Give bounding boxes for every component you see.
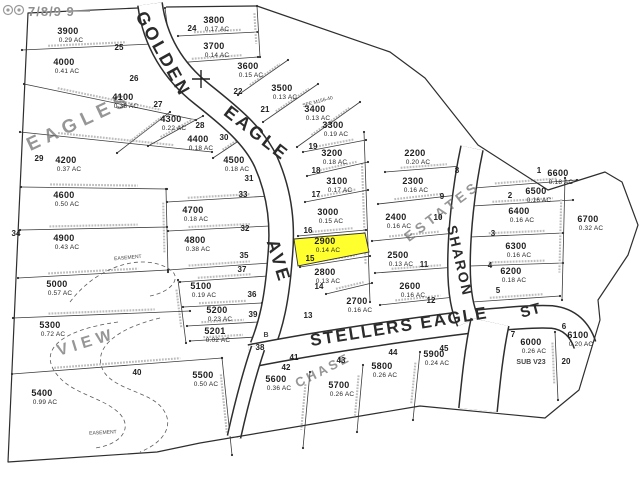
lot-number-label: 12 (427, 296, 436, 305)
lot-number-label: 20 (562, 357, 571, 366)
lot-number-label: 43 (337, 356, 346, 365)
lot-area-label: 0.32 AC (579, 225, 604, 232)
lot-number-label: 34 (12, 229, 21, 238)
lot-number-label: 40 (133, 368, 142, 377)
lot-id-label: 6700 (577, 214, 598, 224)
lot-number-label: 4 (488, 261, 493, 270)
lot-number-label: 9 (440, 192, 445, 201)
lot-number-label: 15 (306, 254, 315, 263)
lot-number-label: 13 (304, 311, 313, 320)
lot-label: 47000.18 AC (182, 205, 208, 223)
lot-label: 35000.13 AC (271, 83, 297, 101)
lot-area-label: 0.50 AC (194, 381, 219, 388)
lot-label: 48000.38 AC (184, 235, 210, 253)
lot-label: 31000.17 AC (326, 176, 352, 194)
lot-area-label: 0.18 AC (549, 179, 574, 186)
lot-id-label: 3000 (317, 207, 338, 217)
plat-map-container: 7/8/9 9GOLDENEAGLEAVESHARONSTELLERS EAGL… (0, 0, 640, 480)
lot-area-label: 0.50 AC (55, 201, 80, 208)
lot-number-label: 29 (35, 154, 44, 163)
lot-number-label: 27 (154, 100, 163, 109)
lot-area-label: 0.16 AC (510, 217, 535, 224)
lot-label: 64000.16 AC (508, 206, 534, 224)
lot-label: 30000.15 AC (317, 207, 343, 225)
lot-number-label: 39 (249, 310, 258, 319)
lot-number-label: 28 (196, 121, 205, 130)
lot-id-label: 3200 (321, 148, 342, 158)
lot-area-label: 0.19 AC (192, 292, 217, 299)
lot-number-label: 32 (241, 224, 250, 233)
lot-label: 33000.19 AC (322, 120, 348, 138)
lot-area-label: 0.16 AC (507, 252, 532, 259)
lot-label: 65000.16 AC (525, 186, 551, 204)
lot-id-label: 4500 (223, 155, 244, 165)
lot-id-label: 3600 (237, 61, 258, 71)
lot-id-label: 2700 (346, 296, 367, 306)
lot-number-label: 18 (312, 166, 321, 175)
lot-label: 52000.23 AC (206, 305, 232, 323)
lot-area-label: 0.15 AC (319, 218, 344, 225)
lot-label: 42000.37 AC (55, 155, 81, 173)
lot-area-label: 0.15 AC (239, 72, 264, 79)
lot-area-label: 0.14 AC (316, 247, 341, 254)
lot-label: 23000.16 AC (402, 176, 428, 194)
lot-label: 67000.32 AC (577, 214, 603, 232)
lot-area-label: 0.24 AC (425, 360, 450, 367)
lot-label: 37000.14 AC (203, 41, 229, 59)
lot-area-label: 0.43 AC (55, 244, 80, 251)
lot-label: 32000.18 AC (321, 148, 347, 166)
lot-label: 24000.16 AC (385, 212, 411, 230)
lot-area-label: 0.57 AC (48, 290, 73, 297)
lot-area-label: 0.18 AC (502, 277, 527, 284)
lot-id-label: 5100 (190, 281, 211, 291)
lot-id-label: 3300 (322, 120, 343, 130)
lot-number-label: 26 (130, 74, 139, 83)
lot-id-label: 5400 (31, 388, 52, 398)
lot-id-label: 2300 (402, 176, 423, 186)
annotation-label: EASEMENT (114, 254, 142, 262)
lot-area-label: 0.37 AC (57, 166, 82, 173)
lot-number-label: 8 (455, 166, 460, 175)
lot-number-label: 17 (312, 190, 321, 199)
lot-label: 63000.16 AC (505, 241, 531, 259)
plat-map: 7/8/9 9GOLDENEAGLEAVESHARONSTELLERS EAGL… (0, 0, 640, 480)
lot-id-label: 3900 (57, 26, 78, 36)
lot-number-label: 11 (420, 260, 429, 269)
lot-area-label: 0.26 AC (330, 391, 355, 398)
lot-number-label: 42 (282, 363, 291, 372)
annotation-label: B (263, 332, 268, 339)
lot-number-label: 10 (434, 213, 443, 222)
lot-number-label: 19 (309, 142, 318, 151)
lot-id-label: 2600 (399, 281, 420, 291)
lot-id-label: 4900 (53, 233, 74, 243)
lot-id-label: 6100 (567, 330, 588, 340)
lot-label: 56000.36 AC (265, 374, 291, 392)
lot-number-label: 44 (389, 348, 398, 357)
lot-label: 49000.43 AC (53, 233, 79, 251)
lot-label: 54000.99 AC (31, 388, 57, 406)
lot-area-label: 0.18 AC (189, 145, 214, 152)
lot-id-label: 4100 (112, 92, 133, 102)
lot-id-label: 5201 (204, 326, 225, 336)
lot-id-label: 6300 (505, 241, 526, 251)
lot-label: 60000.26 AC (520, 337, 546, 355)
lot-id-label: 5200 (206, 305, 227, 315)
lot-label: 36000.15 AC (237, 61, 263, 79)
lot-label: 27000.16 AC (346, 296, 372, 314)
lot-number-label: 7 (511, 330, 516, 339)
lot-label: 55000.50 AC (192, 370, 218, 388)
lot-area-label: 0.13 AC (273, 94, 298, 101)
lot-area-label: 0.41 AC (55, 68, 80, 75)
lot-number-label: 25 (115, 43, 124, 52)
lot-number-label: 38 (256, 343, 265, 352)
lot-label: 52010.02 AC (204, 326, 230, 344)
lot-id-label: 3100 (326, 176, 347, 186)
lot-area-label: 0.26 AC (373, 372, 398, 379)
lot-number-label: 33 (239, 190, 248, 199)
lot-area-label: 0.38 AC (186, 246, 211, 253)
lot-number-label: 41 (290, 353, 299, 362)
lot-area-label: 0.18 AC (184, 216, 209, 223)
lot-id-label: 2400 (385, 212, 406, 222)
lot-label: 22000.20 AC (404, 148, 430, 166)
lot-number-label: 24 (188, 24, 197, 33)
lot-number-label: 30 (220, 133, 229, 142)
lot-label: 46000.50 AC (53, 190, 79, 208)
lot-number-label: 35 (240, 251, 249, 260)
lot-id-label: 4800 (184, 235, 205, 245)
lot-label: 53000.72 AC (39, 320, 65, 338)
lot-id-label: 5500 (192, 370, 213, 380)
lot-number-label: 45 (440, 344, 449, 353)
lot-label: 51000.19 AC (190, 281, 216, 299)
lot-area-label: 0.17 AC (205, 26, 230, 33)
lot-area-label: 0.17 AC (328, 187, 353, 194)
lot-number-label: 36 (248, 290, 257, 299)
lot-id-label: 2900 (314, 236, 335, 246)
lot-area-label: 0.14 AC (205, 52, 230, 59)
lot-number-label: 2 (508, 191, 513, 200)
lot-label: 58000.26 AC (371, 361, 397, 379)
lot-id-label: 2200 (404, 148, 425, 158)
lot-id-label: 5600 (265, 374, 286, 384)
lot-area-label: 0.16 AC (527, 197, 552, 204)
lot-label: 40000.41 AC (53, 57, 79, 75)
lot-number-label: 37 (238, 265, 247, 274)
lot-id-label: 6000 (520, 337, 541, 347)
lot-area-label: 0.23 AC (208, 316, 233, 323)
lot-id-label: 2500 (387, 250, 408, 260)
lot-label: 38000.17 AC (203, 15, 229, 33)
lot-label: 45000.18 AC (223, 155, 249, 173)
lot-number-label: 31 (245, 174, 254, 183)
lot-label: 62000.18 AC (500, 266, 526, 284)
lot-id-label: 4000 (53, 57, 74, 67)
lot-id-label: 3500 (271, 83, 292, 93)
lot-area-label: 0.16 AC (401, 292, 426, 299)
lot-area-label: 0.38 AC (114, 103, 139, 110)
lot-number-label: 1 (537, 166, 542, 175)
lot-number-label: 21 (261, 105, 270, 114)
lot-id-label: 3700 (203, 41, 224, 51)
lot-area-label: 0.72 AC (41, 331, 66, 338)
lot-id-label: 4300 (160, 114, 181, 124)
lot-label: 41000.38 AC (112, 92, 138, 110)
lot-id-label: 5700 (328, 380, 349, 390)
lot-area-label: 0.29 AC (59, 37, 84, 44)
lot-area-label: 0.20 AC (406, 159, 431, 166)
lot-area-label: 0.22 AC (162, 125, 187, 132)
lot-number-label: 5 (496, 286, 501, 295)
lot-label: 66000.18 AC (547, 168, 573, 186)
lot-label: 26000.16 AC (399, 281, 425, 299)
lot-id-label: 2800 (314, 267, 335, 277)
lot-area-label: 0.18 AC (323, 159, 348, 166)
lot-id-label: 4700 (182, 205, 203, 215)
lot-number-label: 22 (234, 87, 243, 96)
lot-id-label: 6400 (508, 206, 529, 216)
lot-area-label: 0.18 AC (225, 166, 250, 173)
lot-area-label: 0.99 AC (33, 399, 58, 406)
watermark: 7/8/9 9 (4, 4, 91, 19)
lot-id-label: 5000 (46, 279, 67, 289)
annotation-label: EASEMENT (89, 429, 117, 436)
lot-area-label: 0.20 AC (569, 341, 594, 348)
lot-number-label: 6 (562, 322, 567, 331)
lot-area-label: 0.26 AC (522, 348, 547, 355)
lot-label: 44000.18 AC (187, 134, 213, 152)
lot-number-label: 14 (315, 282, 324, 291)
lot-id-label: 5800 (371, 361, 392, 371)
lot-area-label: 0.02 AC (206, 337, 231, 344)
lot-id-label: 6600 (547, 168, 568, 178)
lot-area-label: 0.16 AC (404, 187, 429, 194)
lot-id-label: 6200 (500, 266, 521, 276)
lot-area-label: 0.16 AC (348, 307, 373, 314)
lot-label: 39000.29 AC (57, 26, 83, 44)
lot-number-label: 3 (491, 229, 496, 238)
lot-area-label: 0.19 AC (324, 131, 349, 138)
lot-id-label: 3800 (203, 15, 224, 25)
lot-label: 43000.22 AC (160, 114, 186, 132)
lot-label: 57000.26 AC (328, 380, 354, 398)
lot-label: 25000.13 AC (387, 250, 413, 268)
lot-area-label: 0.16 AC (387, 223, 412, 230)
lot-area-label: 0.36 AC (267, 385, 292, 392)
lot-area-label: 0.13 AC (389, 261, 414, 268)
lot-id-label: 4200 (55, 155, 76, 165)
lot-number-label: 16 (304, 226, 313, 235)
lot-id-label: 6500 (525, 186, 546, 196)
lot-id-label: 4600 (53, 190, 74, 200)
annotation-label: SUB V23 (516, 359, 545, 366)
lot-label: 50000.57 AC (46, 279, 72, 297)
lot-id-label: 5300 (39, 320, 60, 330)
lot-id-label: 4400 (187, 134, 208, 144)
